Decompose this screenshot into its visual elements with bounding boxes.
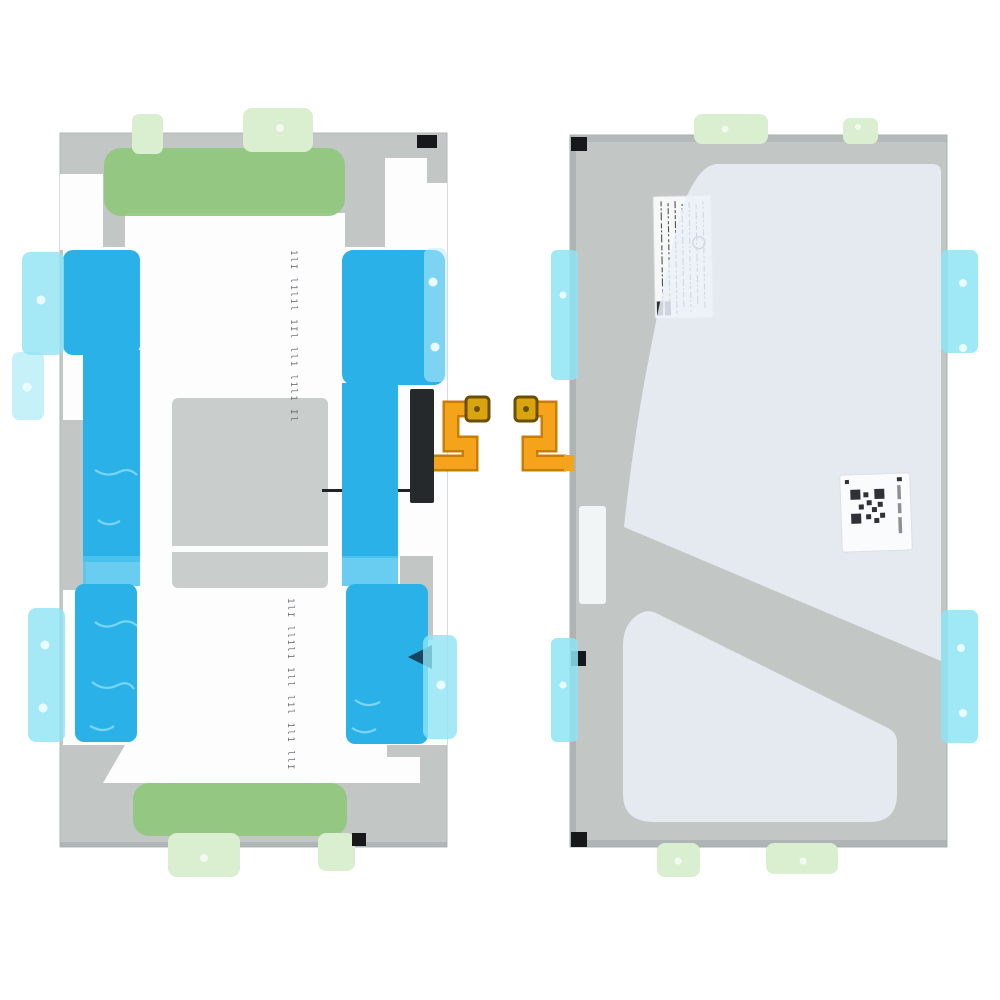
qr-cell — [872, 507, 877, 512]
cyan-pull-tab — [941, 610, 978, 743]
fiducial-mark-rear-top — [571, 137, 587, 151]
gray-sliver-left — [63, 420, 86, 590]
rivet-hole — [429, 278, 438, 287]
qr-cell — [867, 500, 872, 505]
rivet-hole — [23, 383, 32, 392]
microprint-lower: 1lI ll1l1 1ll l1l 1l1 llI — [285, 598, 295, 771]
rivet-hole — [41, 641, 50, 650]
blue-adhesive-right-light-seg — [342, 556, 398, 586]
qr-corner-dot — [897, 477, 902, 481]
qr-cell — [874, 489, 884, 499]
edge-sticker — [579, 506, 606, 604]
qr-cell — [880, 513, 885, 518]
product-photo: 1lI l1l1l 1Il ll1 l1l1 Il 1lI ll1l1 1ll … — [0, 0, 1000, 1000]
blue-adhesive-left-light-seg — [83, 556, 140, 586]
rivet-hole — [959, 709, 967, 717]
qr-cell — [850, 490, 860, 500]
green-tab-hole — [855, 124, 861, 130]
rivet-hole — [959, 279, 967, 287]
green-tab-hole — [722, 126, 729, 133]
cyan-pull-tab — [941, 250, 978, 353]
fiducial-mark-top-right — [417, 135, 437, 148]
qr-cell — [859, 504, 864, 509]
qr-corner-dot — [845, 480, 849, 484]
blue-adhesive-left-strip — [83, 350, 140, 562]
blue-adhesive-left-lower — [75, 584, 137, 742]
qr-cell — [874, 518, 879, 523]
green-pull-tab — [694, 114, 768, 144]
qr-cell — [863, 492, 868, 497]
qr-cell — [878, 502, 883, 507]
rivet-hole — [560, 682, 567, 689]
rivet-hole — [959, 344, 967, 352]
green-adhesive-bottom-strip — [133, 783, 347, 836]
battery-front-unit: 1lI l1l1l 1Il ll1 l1l1 Il 1lI ll1l1 1ll … — [12, 108, 489, 877]
fiducial-mark-rear-bottom — [571, 832, 587, 847]
cyan-pull-tab-right-upper — [424, 248, 447, 382]
battery-connector-block — [410, 389, 434, 503]
white-cutout-bottom-band — [103, 745, 420, 783]
flex-pad-hole-left — [474, 406, 480, 412]
white-cutout-left-notch — [60, 174, 103, 250]
blue-adhesive-right-lower — [346, 584, 428, 744]
flex-pad-hole-right — [523, 406, 529, 412]
green-pull-tab — [132, 114, 163, 154]
rear-bottom-edge — [570, 840, 947, 847]
battery-rear-unit — [515, 114, 978, 877]
green-tab-hole — [800, 858, 807, 865]
microprint-upper: 1lI l1l1l 1Il ll1 l1l1 Il — [288, 250, 298, 423]
qr-sticker — [840, 473, 913, 552]
green-adhesive-top-strip — [104, 148, 345, 216]
green-tab-hole — [276, 124, 284, 132]
green-tab-hole — [200, 854, 208, 862]
rivet-hole — [39, 704, 48, 713]
rivet-hole — [437, 681, 446, 690]
qr-side-line — [897, 485, 901, 499]
rivet-hole — [431, 343, 440, 352]
green-pull-tab — [318, 833, 355, 871]
green-pull-tab — [843, 118, 878, 144]
blue-adhesive-right-strip — [342, 383, 398, 558]
rivet-hole — [37, 296, 46, 305]
flex-cable-stub — [564, 455, 574, 471]
qr-cell — [851, 514, 861, 524]
front-sheet-bottom-shadow — [60, 842, 447, 847]
green-tab-hole — [675, 858, 682, 865]
qr-side-line — [898, 503, 902, 513]
fiducial-mark-bottom — [352, 833, 366, 846]
qr-side-line — [898, 517, 902, 533]
cyan-pull-tab-left-lower — [28, 608, 65, 742]
center-window-split-line — [172, 546, 328, 552]
rivet-hole — [957, 644, 965, 652]
rivet-hole — [560, 292, 567, 299]
battery-product-image: 1lI l1l1l 1Il ll1 l1l1 Il 1lI ll1l1 1ll … — [0, 0, 1000, 1000]
center-gray-window — [172, 398, 328, 588]
qr-cell — [866, 514, 871, 519]
white-cutout-under-top-strip — [125, 213, 345, 249]
cyan-pull-tab — [551, 250, 578, 380]
blue-adhesive-left-pad — [63, 250, 140, 355]
cyan-pull-tab — [551, 638, 578, 742]
